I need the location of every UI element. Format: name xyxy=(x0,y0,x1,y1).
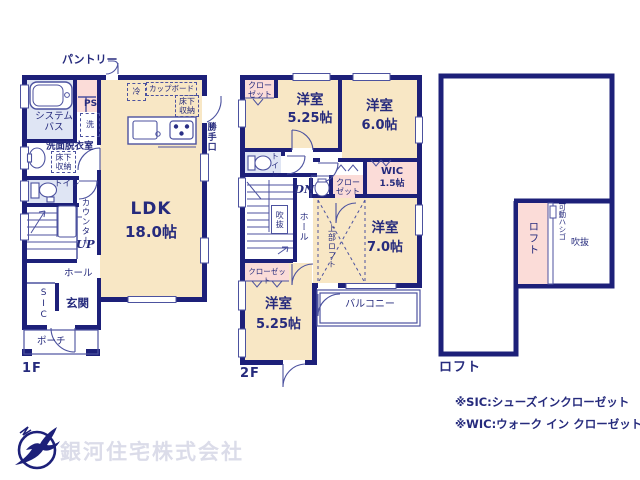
floor-plan-page: パントリー システムバス PS 洗 洗面脱衣室 床下収納 トイレ カウンター U… xyxy=(0,0,640,480)
label-closet-bottom: クローゼット xyxy=(245,268,289,286)
label-loft-above: 上部ロフト xyxy=(327,224,336,269)
toilet-icon-2f xyxy=(248,156,271,170)
label-room-a: 洋室 xyxy=(270,93,350,109)
label-ps: PS xyxy=(84,99,97,110)
label-wic: WIC xyxy=(367,166,417,178)
label-room-d: 洋室 xyxy=(245,297,312,313)
loft-plan xyxy=(441,76,612,354)
label-underfloor-kitchen: 床下収納 xyxy=(175,95,199,117)
label-system-bath: システムバス xyxy=(31,111,77,133)
label-porch: ポーチ xyxy=(37,336,66,347)
label-loft-floor: ロフト xyxy=(439,360,481,375)
bathtub-icon xyxy=(30,82,72,109)
label-entrance: 玄関 xyxy=(66,297,89,311)
note-sic: ※SIC:シューズインクローゼット xyxy=(455,396,629,410)
label-back-door: 勝手口 xyxy=(205,122,216,152)
label-room-a-size: 5.25帖 xyxy=(270,111,350,126)
label-room-b: 洋室 xyxy=(342,99,417,115)
label-room-b-size: 6.0帖 xyxy=(342,118,417,133)
label-floor2: 2F xyxy=(240,366,260,381)
washbasin-icon-1f xyxy=(28,148,46,168)
label-sic: SIC xyxy=(38,288,49,321)
label-toilet-2f: トイレ xyxy=(270,152,279,179)
label-loft-room: ロフト xyxy=(527,221,539,256)
label-closet-mid: クローゼット xyxy=(333,178,363,197)
label-ldk-size: 18.0帖 xyxy=(100,224,202,242)
label-void-loft: 吹抜 xyxy=(571,238,589,249)
label-room-d-size: 5.25帖 xyxy=(245,317,312,332)
label-laundry-box: 洗 xyxy=(80,113,100,137)
label-room-c-size: 7.0帖 xyxy=(355,240,415,255)
label-balcony: バルコニー xyxy=(330,299,410,311)
company-logo xyxy=(15,427,60,468)
note-wic: ※WIC:ウォーク イン クローゼット xyxy=(455,418,640,432)
company-name: 銀河住宅株式会社 xyxy=(60,440,244,465)
label-room-c: 洋室 xyxy=(355,221,415,237)
label-void-2f: 吹抜 xyxy=(271,205,288,234)
label-toilet-1f: トイレ xyxy=(54,179,80,189)
label-dn: DN xyxy=(294,183,314,197)
label-floor1: 1F xyxy=(22,361,42,376)
label-underfloor-washroom: 床下収納 xyxy=(51,151,76,173)
counter-desk xyxy=(58,206,76,237)
label-pantry: パントリー xyxy=(62,54,118,67)
kitchen-island-icon xyxy=(128,117,196,147)
label-ldk: LDK xyxy=(100,199,202,219)
label-up: UP xyxy=(76,238,95,252)
label-cupboard-box: カップボード xyxy=(146,82,197,96)
label-wic-size: 1.5帖 xyxy=(367,179,417,190)
label-fridge-box: 冷 xyxy=(127,83,146,101)
label-ladder: 可動ハシゴ xyxy=(557,203,566,241)
label-hall-1f: ホール xyxy=(64,268,93,279)
label-hall-2f: ホール xyxy=(297,212,308,242)
